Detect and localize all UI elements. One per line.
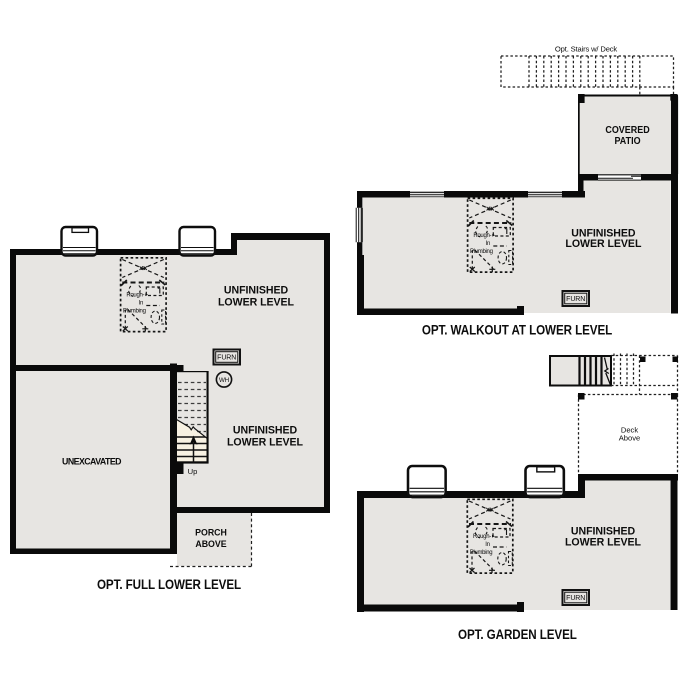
svg-text:UNFINISHED: UNFINISHED bbox=[233, 425, 298, 437]
svg-text:LOWER LEVEL: LOWER LEVEL bbox=[227, 437, 304, 449]
svg-text:UNFINISHED: UNFINISHED bbox=[571, 525, 636, 537]
svg-text:OPT. GARDEN LEVEL: OPT. GARDEN LEVEL bbox=[458, 626, 577, 642]
svg-text:PORCH: PORCH bbox=[195, 528, 227, 538]
svg-text:OPT. WALKOUT AT LOWER LEVEL: OPT. WALKOUT AT LOWER LEVEL bbox=[422, 321, 612, 337]
svg-text:Up: Up bbox=[188, 467, 198, 476]
svg-text:Opt. Stairs w/ Deck: Opt. Stairs w/ Deck bbox=[555, 45, 617, 54]
svg-text:OPT. FULL LOWER LEVEL: OPT. FULL LOWER LEVEL bbox=[97, 576, 241, 592]
svg-text:WH: WH bbox=[219, 377, 229, 384]
svg-text:ABOVE: ABOVE bbox=[195, 539, 226, 549]
svg-text:UNEXCAVATED: UNEXCAVATED bbox=[62, 457, 121, 467]
svg-text:UNFINISHED: UNFINISHED bbox=[224, 284, 289, 296]
svg-text:LOWER LEVEL: LOWER LEVEL bbox=[565, 238, 642, 250]
svg-text:LOWER LEVEL: LOWER LEVEL bbox=[218, 297, 295, 309]
svg-text:LOWER LEVEL: LOWER LEVEL bbox=[565, 537, 642, 549]
svg-text:PATIO: PATIO bbox=[614, 135, 641, 147]
svg-text:Above: Above bbox=[619, 434, 641, 443]
